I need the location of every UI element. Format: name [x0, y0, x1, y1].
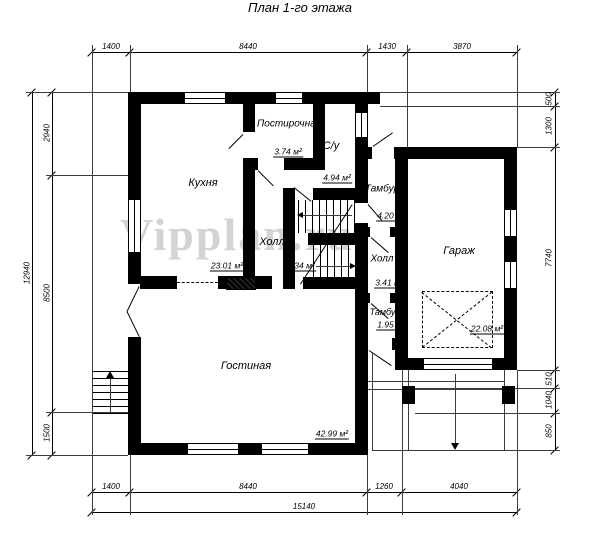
- steps-arrow-line: [110, 378, 111, 412]
- porch-step-line: [368, 381, 504, 382]
- wall-bottom: [128, 443, 368, 455]
- arrow-down-icon: [451, 443, 459, 450]
- wall-living-left: [140, 276, 177, 289]
- window: [355, 113, 368, 137]
- dim-label: 1040: [545, 391, 554, 409]
- dim-label: 1260: [375, 482, 393, 491]
- door-leaf: [229, 134, 244, 149]
- room-label-living-room: Гостиная: [221, 360, 271, 372]
- window: [262, 443, 308, 455]
- wall-laundry-bath: [313, 104, 325, 162]
- window: [504, 262, 517, 288]
- dim-label: 3870: [453, 42, 471, 51]
- room-area-living-room: 42.99 м²: [315, 429, 349, 440]
- room-area-kitchen: 23.01 м²: [210, 261, 244, 272]
- room-area-vestibule-top: 4.20 м²: [376, 211, 406, 222]
- extension-line: [380, 106, 560, 107]
- room-area-laundry: 3.74 м²: [273, 147, 303, 158]
- room-label-kitchen: Кухня: [188, 177, 217, 189]
- garage-wall-right: [504, 147, 517, 370]
- dim-label: 1430: [378, 42, 396, 51]
- room-area-hall-main: 9.34 м²: [286, 261, 316, 272]
- door-leaf: [258, 170, 274, 186]
- dim-label: 1300: [545, 117, 554, 135]
- wall-laundry-bottom: [243, 158, 325, 170]
- driveway-edge: [408, 370, 409, 450]
- arrow-left-icon: [297, 212, 303, 218]
- dim-line-bottom: [92, 492, 517, 493]
- dim-line-bottom-total: [92, 512, 517, 513]
- fireplace: [226, 277, 256, 290]
- window: [185, 92, 225, 104]
- room-label-hall-right: Холл: [370, 254, 393, 265]
- driveway-edge: [504, 370, 505, 450]
- door-opening: [355, 203, 368, 223]
- dim-line-top: [92, 52, 517, 53]
- door-opening: [370, 227, 390, 237]
- extension-line: [26, 92, 128, 93]
- extension-line: [504, 450, 560, 451]
- room-area-hall-right: 3.41 м²: [374, 278, 404, 289]
- extension-line: [517, 147, 560, 148]
- pillar: [402, 386, 415, 404]
- stair-treads-upper: [298, 200, 356, 233]
- room-label-garage: Гараж: [443, 245, 475, 257]
- window: [188, 443, 238, 455]
- porch-step-line: [368, 389, 504, 390]
- room-label-vestibule-bottom: Тамбур: [370, 307, 401, 317]
- door-opening: [370, 293, 390, 303]
- dim-label: 8440: [239, 482, 257, 491]
- arrow-up-icon: [106, 371, 114, 378]
- pillar: [502, 386, 515, 404]
- dim-line-left-total: [32, 92, 33, 455]
- extension-line: [130, 45, 131, 92]
- extension-line: [517, 370, 560, 371]
- porch-edge: [372, 352, 373, 450]
- garage-door: [424, 358, 492, 370]
- dim-label: 1400: [102, 42, 120, 51]
- extension-line: [130, 455, 131, 515]
- window: [276, 92, 302, 104]
- dim-label-total: 12940: [23, 262, 32, 284]
- dim-label: 7740: [545, 249, 554, 267]
- dim-label: 8500: [43, 284, 52, 302]
- opening-dashed-line: [177, 282, 218, 283]
- room-label-bathroom: С/у: [323, 140, 340, 152]
- extension-line: [367, 455, 368, 515]
- room-label-hall-main: Холл: [259, 236, 284, 248]
- arrow-right-icon: [350, 263, 356, 269]
- dim-label: 1400: [102, 482, 120, 491]
- room-area-vestibule-bottom: 1.95 м²: [376, 320, 406, 331]
- window: [128, 200, 141, 252]
- door-leaf: [371, 237, 389, 253]
- extension-line: [517, 370, 518, 515]
- dim-label: 850: [545, 424, 554, 437]
- dim-label-total: 15140: [293, 502, 315, 511]
- room-area-bathroom: 4.94 м²: [322, 173, 352, 184]
- extension-line: [517, 45, 518, 147]
- door-opening: [372, 147, 394, 159]
- extension-line: [415, 413, 560, 414]
- extension-line: [367, 45, 368, 92]
- dim-line-left: [52, 92, 53, 455]
- driveway-arrow-line: [455, 374, 456, 444]
- door-leaf: [373, 132, 393, 147]
- dim-label: 4040: [450, 482, 468, 491]
- porch-edge: [372, 450, 505, 451]
- room-area-garage: 22.08 м²: [470, 324, 504, 335]
- wall-living-right: [303, 277, 368, 289]
- dim-label: 1500: [43, 424, 52, 442]
- page-title: План 1-го этажа: [0, 0, 600, 15]
- wall-top: [128, 92, 380, 104]
- dim-label: 500: [545, 92, 554, 105]
- extension-line: [46, 175, 128, 176]
- door-opening: [258, 158, 284, 170]
- extension-line: [92, 45, 93, 515]
- extension-line: [407, 45, 408, 147]
- door-opening: [368, 338, 392, 350]
- window: [504, 210, 517, 236]
- dim-label: 8440: [239, 42, 257, 51]
- stair-arrow-line: [316, 266, 352, 267]
- extension-line: [26, 455, 128, 456]
- room-label-laundry: Постирочная: [257, 119, 321, 130]
- dim-label: 510: [545, 372, 554, 385]
- dim-label: 2940: [43, 124, 52, 142]
- room-label-vestibule-top: Тамбур: [365, 184, 399, 195]
- extension-line: [380, 92, 560, 93]
- floor-plan-canvas: План 1-го этажа Vipplan.ru: [0, 0, 600, 539]
- garage-wall-left: [395, 147, 408, 370]
- garage-wall-top: [395, 147, 517, 159]
- wall-stair-left: [283, 188, 295, 289]
